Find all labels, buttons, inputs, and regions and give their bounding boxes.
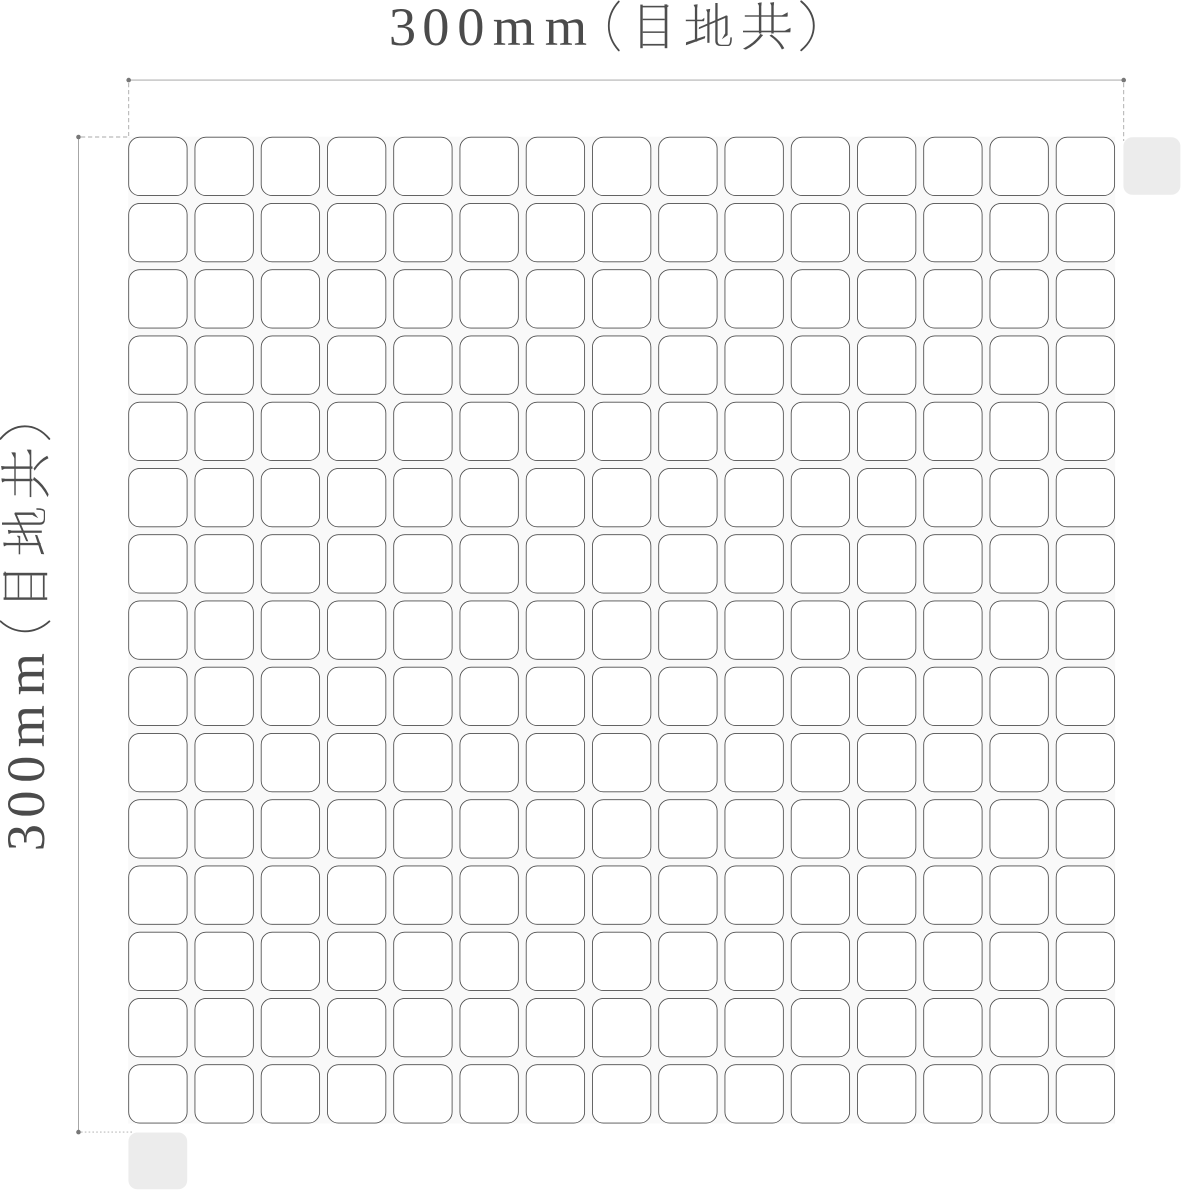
svg-text:0: 0 (422, 0, 449, 57)
svg-text:m: m (545, 0, 587, 57)
svg-text:3: 3 (389, 0, 416, 57)
svg-text:0: 0 (457, 0, 484, 57)
svg-text:m: m (493, 0, 535, 57)
